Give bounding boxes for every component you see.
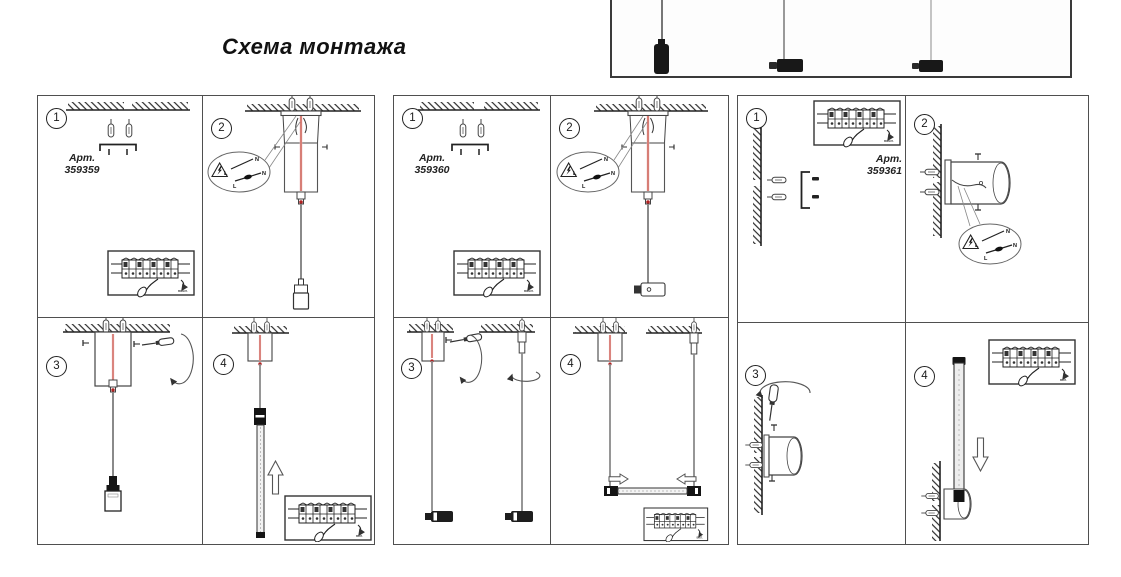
article-label: Арт. — [402, 152, 462, 164]
wiring-detail-balloon: N L L N — [959, 224, 1021, 264]
p3-step1-diagram: выкл. — [738, 96, 906, 323]
wall-anchor-icon — [767, 177, 786, 183]
inset-label: вкл. — [356, 533, 363, 538]
tube-connector — [604, 486, 618, 496]
terminal-block-inset: выкл. — [814, 101, 900, 148]
rotation-arrow — [512, 372, 540, 381]
screwdriver-icon — [142, 337, 175, 348]
p2-step3-diagram — [394, 318, 551, 542]
arrow-down-icon — [973, 438, 988, 471]
step-badge: 2 — [914, 114, 935, 135]
spot-lamp — [425, 511, 453, 522]
lamp-socket — [105, 476, 121, 511]
product-photo-strip — [610, 0, 1072, 78]
terminal-block-inset: выкл. — [454, 251, 540, 298]
tube-lamp — [954, 363, 964, 493]
mounting-bracket — [452, 145, 488, 152]
panel-359359: 1 Арт. 359359 выкл. 2 — [37, 95, 375, 545]
page-title: Схема монтажа — [222, 34, 406, 60]
p3-step4-cell: 4 вкл. — [906, 323, 1088, 544]
mounting-plate — [764, 435, 769, 477]
rotation-arrow — [760, 382, 810, 397]
p2-step1-diagram: выкл. — [394, 96, 551, 318]
panel-359360: 1 Арт. 359360 выкл. 2 — [393, 95, 729, 545]
p1-step3-cell: 3 — [38, 318, 203, 544]
inset-label: вкл. — [697, 535, 704, 539]
p1-step2-cell: 2 N L — [203, 96, 374, 318]
arrow-right-icon — [609, 474, 628, 484]
screw-icon — [975, 154, 981, 160]
svg-text:N: N — [255, 157, 259, 163]
wiring-detail-balloon: N L L N — [557, 152, 619, 192]
screw-icon — [134, 341, 140, 347]
installation-scheme-page: Схема монтажа 1 Арт. 359359 — [0, 0, 1121, 577]
pendant-lamp-horizontal-2-nub — [912, 63, 919, 69]
wall-lamp-body — [951, 162, 1010, 204]
mounting-plate — [945, 160, 951, 204]
p2-step3-cell: 3 — [394, 318, 551, 544]
p3-step1-cell: 1 Арт. 359361 выкл. — [738, 96, 906, 323]
ceiling-hatch — [68, 102, 124, 110]
article-number: 359359 — [52, 164, 112, 176]
terminal-block-inset: вкл. — [989, 340, 1075, 387]
pendant-lamp-horizontal-1 — [777, 59, 803, 72]
wall-anchor-icon — [108, 119, 114, 137]
article-block: Арт. 359361 — [838, 153, 902, 177]
article-number: 359360 — [402, 164, 462, 176]
wiring-detail-balloon: N L L N — [208, 152, 270, 192]
p2-step1-cell: 1 Арт. 359360 выкл. — [394, 96, 551, 318]
inset-label: выкл. — [178, 288, 188, 293]
article-label: Арт. — [838, 153, 902, 165]
suspension-stem — [690, 333, 698, 354]
spot-lamp — [634, 283, 665, 296]
wall-anchor-icon — [289, 96, 295, 111]
step-badge: 1 — [402, 108, 423, 129]
pendant-cable-3 — [930, 0, 932, 62]
tube-lamp-horizontal — [618, 488, 687, 494]
svg-text:N: N — [611, 171, 615, 177]
tube-connector — [687, 486, 701, 496]
mounting-bracket — [802, 172, 811, 208]
pendant-cable-2 — [783, 0, 785, 60]
arrow-up-icon — [268, 461, 283, 494]
step-badge: 1 — [46, 108, 67, 129]
p3-step3-diagram — [738, 323, 906, 542]
mounting-bracket — [100, 145, 136, 152]
p1-step4-diagram: вкл. — [203, 318, 372, 542]
p2-step4-cell: 4 — [551, 318, 728, 544]
step-badge: 3 — [46, 356, 67, 377]
p3-step2-cell: 2 N L — [906, 96, 1088, 323]
p3-step3-cell: 3 — [738, 323, 906, 544]
spot-lamp — [505, 511, 533, 522]
rotation-arrow — [461, 335, 482, 382]
p1-step4-cell: 4 вкл. — [203, 318, 374, 544]
screw-icon — [975, 204, 981, 210]
pendant-lamp-horizontal-2 — [919, 60, 943, 72]
wall-anchor-icon — [126, 119, 132, 137]
suspension-stem — [518, 332, 526, 353]
p2-step2-cell: 2 N L — [551, 96, 728, 318]
inset-label: вкл. — [1060, 377, 1067, 382]
terminal-block-inset: вкл. — [285, 496, 371, 542]
rotation-arrow — [171, 334, 193, 384]
step-badge: 4 — [213, 354, 234, 375]
article-block: Арт. 359360 — [402, 152, 462, 176]
p1-step1-cell: 1 Арт. 359359 выкл. — [38, 96, 203, 318]
step-badge: 4 — [914, 366, 935, 387]
article-label: Арт. — [52, 152, 112, 164]
screwdriver-icon — [766, 384, 779, 421]
pendant-lamp-horizontal-1-nub — [769, 62, 777, 69]
step-badge: 2 — [211, 118, 232, 139]
terminal-block-inset: выкл. — [108, 251, 194, 298]
p2-step4-diagram: вкл. — [551, 318, 728, 542]
step-badge: 2 — [559, 118, 580, 139]
article-number: 359361 — [838, 165, 902, 177]
svg-text:N: N — [604, 157, 608, 163]
article-block: Арт. 359359 — [52, 152, 112, 176]
p3-step4-diagram: вкл. — [906, 323, 1088, 542]
p1-step3-diagram — [38, 318, 203, 542]
terminal-block-inset: вкл. — [644, 508, 708, 542]
screwdriver-icon — [449, 333, 482, 345]
screw-icon — [83, 340, 89, 346]
inset-label: выкл. — [524, 288, 534, 293]
step-badge: 3 — [745, 365, 766, 386]
tube-connector — [954, 490, 965, 502]
panel-359361: 1 Арт. 359361 выкл. 2 — [737, 95, 1089, 545]
lamp-socket — [294, 279, 309, 309]
step-badge: 3 — [401, 358, 422, 379]
p1-step1-diagram: выкл. — [38, 96, 203, 318]
inset-label: выкл. — [884, 138, 894, 143]
svg-text:N: N — [262, 171, 266, 177]
pendant-lamp-vertical-body — [654, 44, 669, 74]
svg-text:N: N — [1013, 243, 1017, 249]
wall-anchor-icon — [767, 194, 786, 200]
wall-anchor-icon — [307, 96, 313, 111]
wall-hatch — [753, 122, 761, 180]
svg-text:N: N — [1006, 229, 1010, 235]
wall-lamp-body — [769, 437, 802, 475]
step-badge: 4 — [560, 354, 581, 375]
step-badge: 1 — [746, 108, 767, 129]
